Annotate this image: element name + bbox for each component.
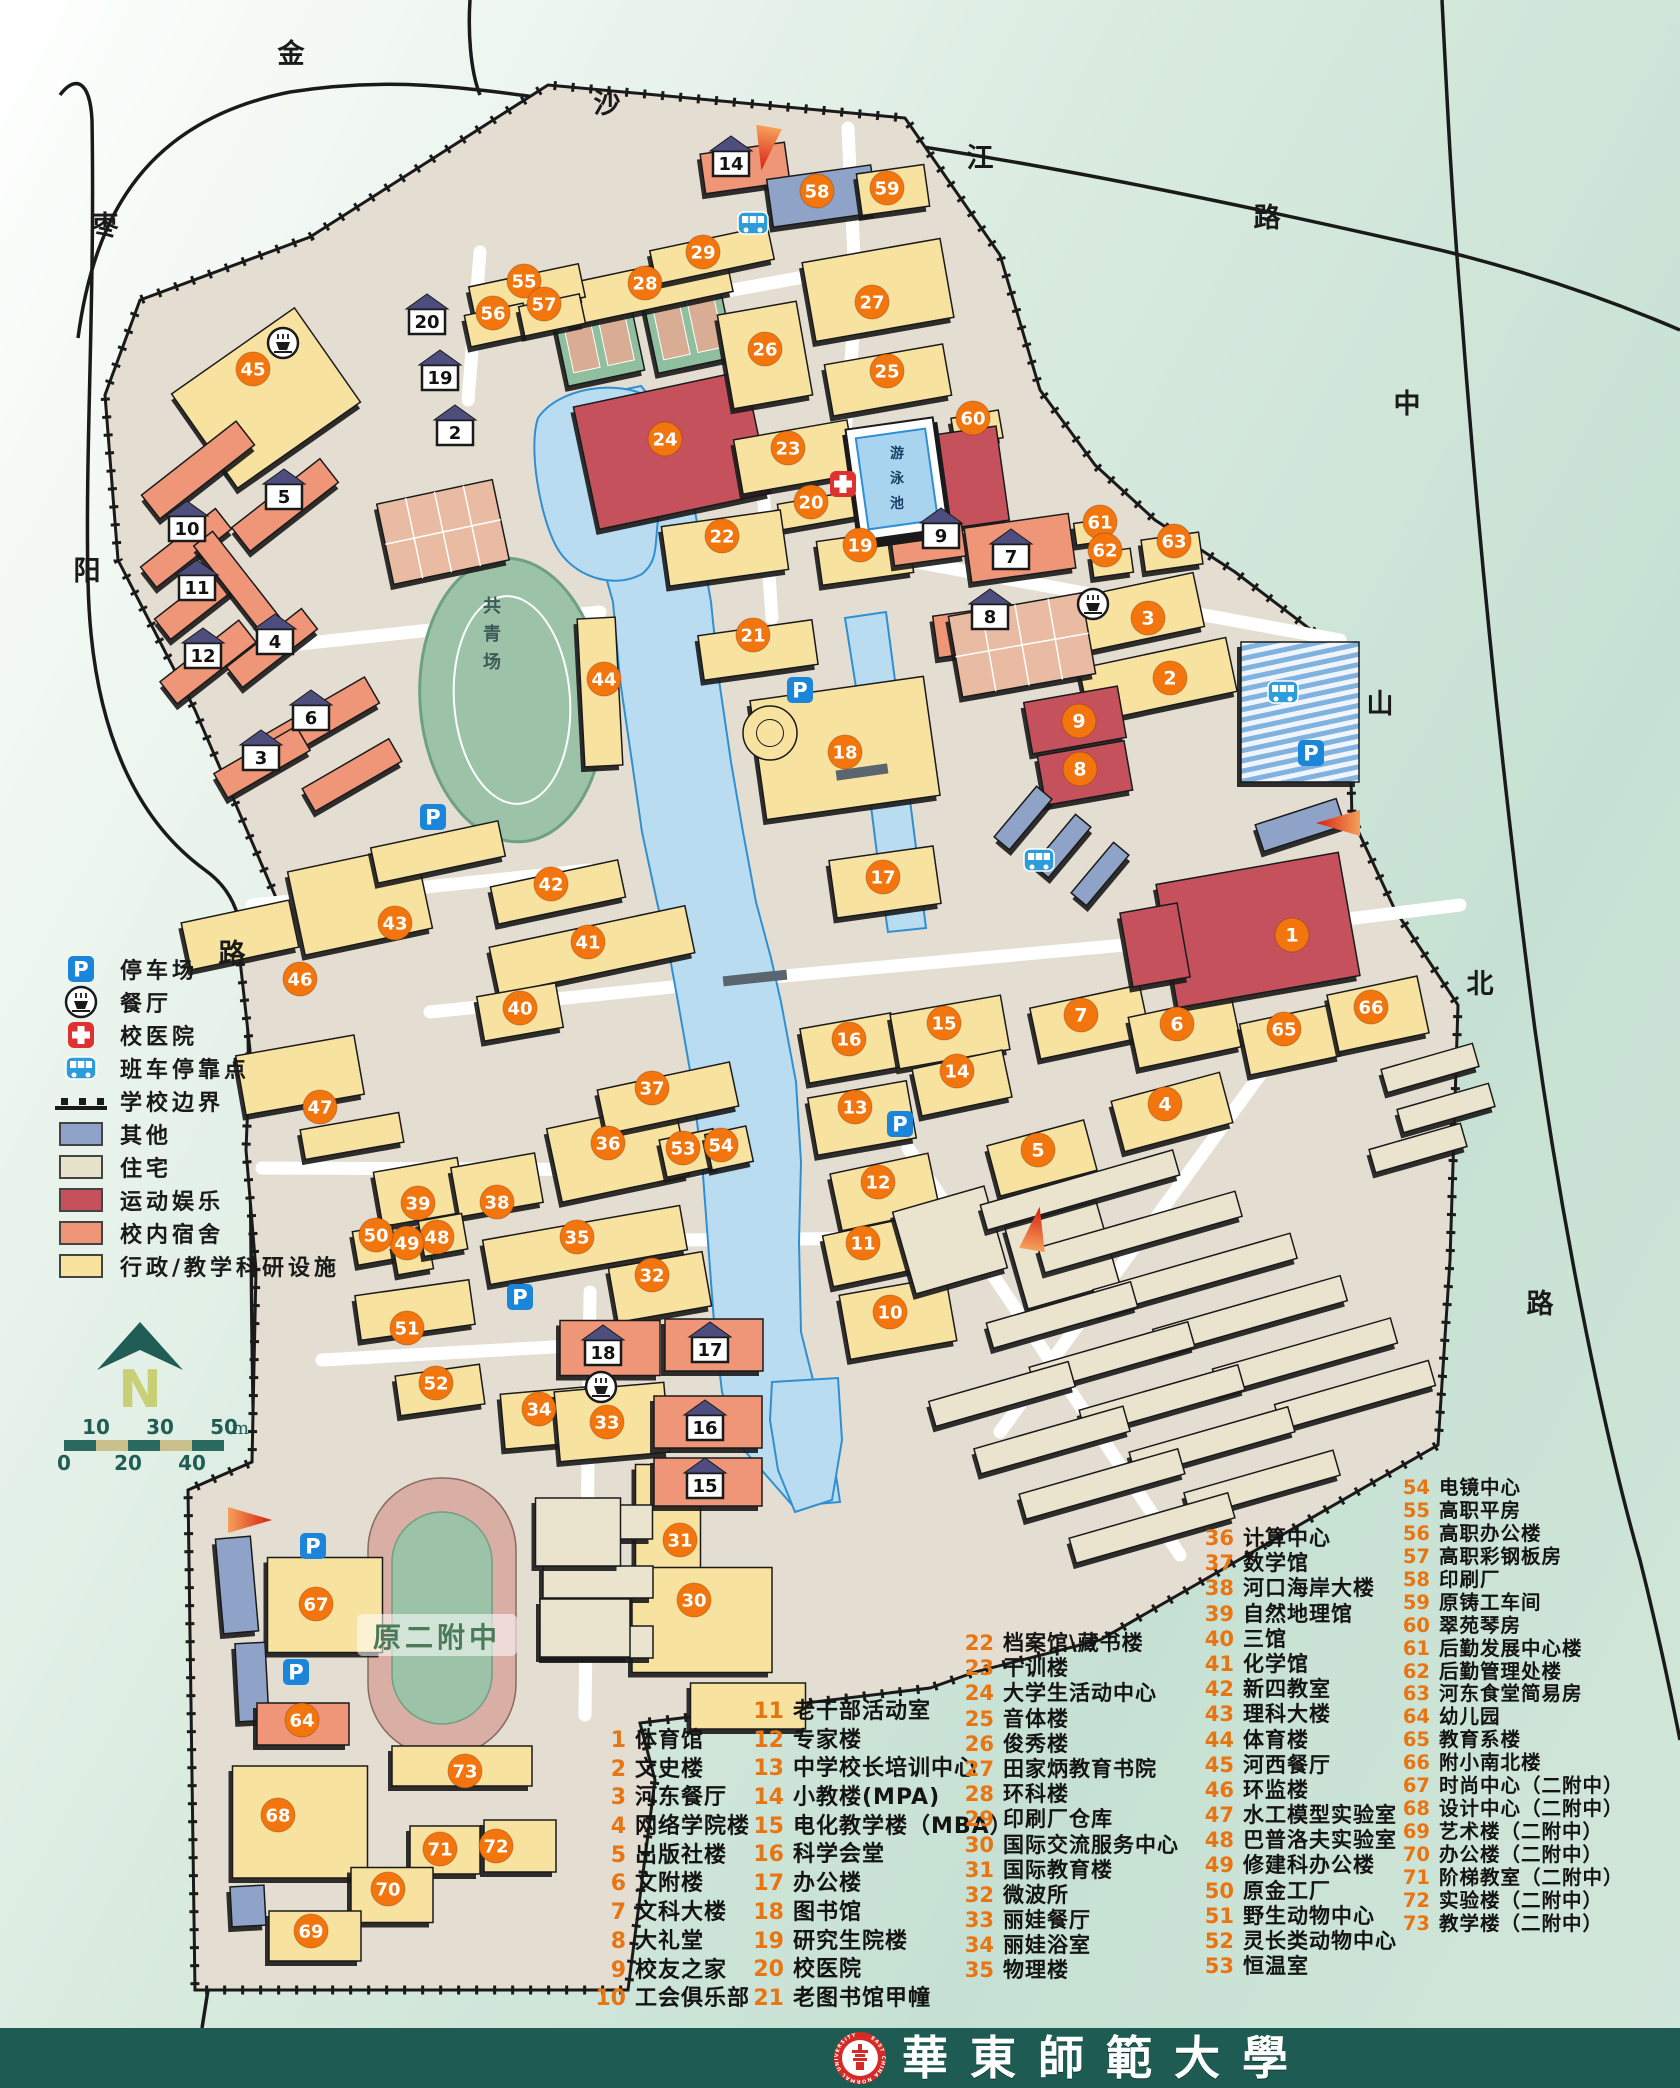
- svg-text:P: P: [892, 1113, 907, 1137]
- building-number: 15: [748, 1814, 784, 1839]
- building-marker-59: 59: [870, 171, 904, 205]
- building-list-item: 30国际交流服务中心: [958, 1829, 1179, 1854]
- svg-text:15: 15: [931, 1014, 956, 1035]
- building-number: 57: [1394, 1545, 1430, 1568]
- svg-text:66: 66: [1358, 998, 1383, 1019]
- building-marker-64: 64: [285, 1703, 319, 1737]
- road-name: 金: [277, 38, 306, 70]
- svg-text:P: P: [792, 679, 807, 703]
- building: [539, 1566, 653, 1603]
- building-marker-39: 39: [401, 1186, 435, 1220]
- boundary-symbol: [55, 1098, 107, 1108]
- map-label: 池: [890, 495, 904, 512]
- road-name: 北: [1467, 969, 1494, 1000]
- building-marker-65: 65: [1267, 1012, 1301, 1046]
- building-number: 73: [1394, 1912, 1430, 1935]
- building-number: 14: [748, 1785, 784, 1810]
- building-number: 53: [1198, 1954, 1234, 1978]
- svg-text:36: 36: [595, 1134, 620, 1155]
- building-marker-2: 2: [1153, 661, 1187, 695]
- building-list-item: 2文史楼: [590, 1751, 750, 1780]
- svg-text:16: 16: [836, 1030, 861, 1051]
- building-marker-9: 9: [1062, 704, 1096, 738]
- building-marker-19: 19: [843, 528, 877, 562]
- legend-label: 餐厅: [120, 986, 172, 1018]
- hospital-icon: [68, 1022, 94, 1048]
- building-list-item: 26俊秀楼: [958, 1728, 1179, 1753]
- building-number: 46: [1198, 1778, 1234, 1802]
- building-name: 小教楼(MPA): [793, 1779, 940, 1811]
- building-marker-31: 31: [663, 1523, 697, 1557]
- building-marker-10: 10: [873, 1295, 907, 1329]
- building-marker-16: 16: [832, 1022, 866, 1056]
- building-marker-15: 15: [927, 1006, 961, 1040]
- building-list-column-5: 54电镜中心55高职平房56高职办公楼57高职彩钢板房58印刷厂59原铸工车间6…: [1394, 1471, 1624, 1930]
- building-marker-14: 14: [940, 1054, 974, 1088]
- building-number: 71: [1394, 1866, 1430, 1889]
- legend-label: 住宅: [120, 1151, 172, 1183]
- map-label: 共: [483, 596, 501, 617]
- svg-text:24: 24: [652, 430, 677, 451]
- svg-text:7: 7: [1005, 547, 1018, 568]
- svg-text:12: 12: [865, 1173, 890, 1194]
- building-number: 50: [1198, 1879, 1234, 1903]
- svg-text:39: 39: [405, 1194, 430, 1215]
- building-number: 36: [1198, 1526, 1234, 1550]
- north-letter: N: [118, 1360, 162, 1412]
- building-number: 32: [958, 1883, 994, 1907]
- building-list-item: 1体育馆: [590, 1722, 750, 1751]
- building-number: 38: [1198, 1576, 1234, 1600]
- building-number: 21: [748, 1986, 784, 2011]
- scale-label: 30: [146, 1415, 174, 1439]
- building-number: 67: [1394, 1774, 1430, 1797]
- building-marker-43: 43: [378, 906, 412, 940]
- svg-text:50: 50: [363, 1226, 388, 1247]
- building-marker-23: 23: [771, 431, 805, 465]
- building-number: 31: [958, 1858, 994, 1882]
- legend-label: 学校边界: [120, 1085, 224, 1117]
- building-name: 文史楼: [635, 1751, 704, 1783]
- building-marker-6: 6: [1160, 1007, 1194, 1041]
- svg-text:63: 63: [1161, 532, 1186, 553]
- building-number: 8: [590, 1929, 626, 1954]
- svg-text:10: 10: [174, 519, 199, 540]
- building-number: 9: [590, 1958, 626, 1983]
- building-list-item: 27田家炳教育书院: [958, 1753, 1179, 1778]
- building-number: 28: [958, 1782, 994, 1806]
- building-number: 56: [1394, 1522, 1430, 1545]
- building-list-item: 3河东餐厅: [590, 1779, 750, 1808]
- building-name: 河东餐厅: [635, 1779, 727, 1811]
- building-list-item: 34丽娃浴室: [958, 1929, 1179, 1954]
- city-road: [469, 0, 480, 95]
- building-name: 工会俱乐部: [635, 1980, 750, 2012]
- svg-text:1: 1: [1285, 925, 1298, 947]
- svg-text:原二附中: 原二附中: [373, 1621, 501, 1654]
- building-number: 42: [1198, 1677, 1234, 1701]
- building-number: 17: [748, 1871, 784, 1896]
- building-marker-26: 26: [748, 332, 782, 366]
- building: [536, 1599, 630, 1662]
- hospital-icon: [830, 471, 856, 497]
- legend-item: 校内宿舍: [42, 1216, 342, 1249]
- svg-text:29: 29: [690, 243, 715, 264]
- building-name: 办公楼: [793, 1865, 862, 1897]
- building-list-item: 32微波所: [958, 1879, 1179, 1904]
- building-list-item: 8大礼堂: [590, 1923, 750, 1952]
- road-name: 山: [1367, 689, 1394, 720]
- bus-stop-icon: [66, 1057, 96, 1079]
- building-list-item: 21老图书馆甲幢: [748, 1980, 1013, 2009]
- legend-label: 行政/教学科研设施: [120, 1250, 340, 1282]
- svg-text:53: 53: [670, 1139, 695, 1160]
- building-list-item: 37数学馆: [1198, 1547, 1397, 1572]
- building-marker-8: 8: [1063, 752, 1097, 786]
- svg-text:9: 9: [935, 526, 948, 547]
- svg-text:70: 70: [375, 1880, 400, 1901]
- building-marker-11: 11: [846, 1226, 880, 1260]
- legend-item: 餐厅: [42, 985, 342, 1018]
- scale-segment: [96, 1440, 128, 1451]
- north-arrow: N: [85, 1312, 195, 1416]
- bus-stop-icon: [738, 212, 768, 234]
- building-name: 专家楼: [793, 1722, 862, 1754]
- restaurant-icon: [268, 328, 298, 358]
- building-name: 校医院: [793, 1951, 862, 1983]
- svg-text:26: 26: [752, 340, 777, 361]
- building-list-item: 48巴普洛夫实验室: [1198, 1824, 1397, 1849]
- building-marker-35: 35: [560, 1220, 594, 1254]
- building-number: 52: [1198, 1929, 1234, 1953]
- building-number: 3: [590, 1785, 626, 1810]
- road-name: 枣: [91, 211, 120, 242]
- svg-text:61: 61: [1087, 513, 1112, 534]
- svg-text:5: 5: [1031, 1140, 1044, 1162]
- svg-text:37: 37: [639, 1079, 664, 1100]
- svg-text:21: 21: [740, 626, 765, 647]
- building-number: 43: [1198, 1702, 1234, 1726]
- legend-label: 其他: [120, 1118, 172, 1150]
- svg-text:P: P: [512, 1286, 527, 1310]
- building-marker-44: 44: [587, 662, 621, 696]
- university-name: 華東師範大學: [902, 2028, 1310, 2088]
- map-label: 游: [890, 445, 904, 462]
- building-marker-13: 13: [838, 1090, 872, 1124]
- svg-text:68: 68: [265, 1806, 290, 1827]
- building-list-item: 29印刷厂仓库: [958, 1803, 1179, 1828]
- building-number: 24: [958, 1681, 994, 1705]
- svg-text:51: 51: [394, 1319, 419, 1340]
- svg-text:14: 14: [944, 1062, 969, 1083]
- building-list-item: 44体育楼: [1198, 1724, 1397, 1749]
- building-name: 文科大楼: [635, 1894, 727, 1926]
- building-number: 45: [1198, 1753, 1234, 1777]
- building-marker-7: 7: [1064, 998, 1098, 1032]
- svg-text:64: 64: [289, 1711, 314, 1732]
- university-logo: EAST CHINA NORMAL UNIVERSITY: [832, 2030, 888, 2086]
- scale-label: 10: [82, 1415, 110, 1439]
- restaurant-icon: [586, 1372, 616, 1402]
- building-number: 33: [958, 1908, 994, 1932]
- building-marker-21: 21: [736, 618, 770, 652]
- building: [229, 1766, 368, 1883]
- building-number: 47: [1198, 1803, 1234, 1827]
- building-list-item: 43理科大楼: [1198, 1698, 1397, 1723]
- parking-icon: P: [887, 1111, 913, 1137]
- svg-text:67: 67: [303, 1595, 328, 1616]
- legend-item: 行政/教学科研设施: [42, 1249, 342, 1282]
- area-label: 原二附中: [357, 1614, 517, 1656]
- building-number: 13: [748, 1756, 784, 1781]
- legend-swatch: [59, 1122, 103, 1146]
- legend-item: 运动娱乐: [42, 1183, 342, 1216]
- building: [743, 706, 797, 760]
- building-name: 图书馆: [793, 1894, 862, 1926]
- scale-unit: m: [232, 1418, 249, 1439]
- parking-icon: P: [1298, 740, 1324, 766]
- building-number: 37: [1198, 1551, 1234, 1575]
- building-marker-53: 53: [666, 1131, 700, 1165]
- bus-stop-icon: [1268, 681, 1298, 703]
- building-number: 72: [1394, 1889, 1430, 1912]
- building-name: 文附楼: [635, 1865, 704, 1897]
- building-number: 69: [1394, 1820, 1430, 1843]
- svg-text:35: 35: [564, 1228, 589, 1249]
- svg-text:31: 31: [667, 1531, 692, 1552]
- building-number: 5: [590, 1843, 626, 1868]
- building-marker-20: 20: [794, 485, 828, 519]
- svg-text:P: P: [1303, 742, 1318, 766]
- building-marker-63: 63: [1157, 524, 1191, 558]
- building-marker-49: 49: [390, 1226, 424, 1260]
- scale-segment: [128, 1440, 160, 1451]
- building-number: 68: [1394, 1797, 1430, 1820]
- building-marker-17: 17: [866, 860, 900, 894]
- building-marker-5: 5: [1021, 1133, 1055, 1167]
- building-number: 19: [748, 1929, 784, 1954]
- legend-swatch: [59, 1188, 103, 1212]
- building-number: 23: [958, 1656, 994, 1680]
- svg-text:57: 57: [531, 295, 556, 316]
- building-number: 44: [1198, 1728, 1234, 1752]
- svg-text:48: 48: [424, 1228, 449, 1249]
- building-list-item: 52灵长类动物中心: [1198, 1925, 1397, 1950]
- building-number: 12: [748, 1728, 784, 1753]
- building-list-item: 23干训楼: [958, 1652, 1179, 1677]
- building-marker-67: 67: [299, 1587, 333, 1621]
- building-marker-4: 4: [1148, 1087, 1182, 1121]
- building-marker-50: 50: [359, 1218, 393, 1252]
- svg-text:32: 32: [639, 1266, 664, 1287]
- legend-item: 住宅: [42, 1150, 342, 1183]
- svg-text:28: 28: [632, 274, 657, 295]
- svg-text:P: P: [288, 1661, 303, 1685]
- building-list-item: 33丽娃餐厅: [958, 1904, 1179, 1929]
- svg-text:2: 2: [1163, 668, 1176, 690]
- svg-text:3: 3: [255, 748, 268, 769]
- building-marker-38: 38: [480, 1185, 514, 1219]
- svg-text:23: 23: [775, 439, 800, 460]
- building-number: 16: [748, 1842, 784, 1867]
- building: [532, 1498, 621, 1571]
- building-list-item: 36计算中心: [1198, 1522, 1397, 1547]
- map-legend: P停车场餐厅校医院班车停靠点学校边界其他住宅运动娱乐校内宿舍行政/教学科研设施: [42, 952, 342, 1282]
- legend-item: 校医院: [42, 1018, 342, 1051]
- bus-stop-icon: [1024, 849, 1054, 871]
- building-list-item: 24大学生活动中心: [958, 1677, 1179, 1702]
- svg-text:11: 11: [850, 1234, 875, 1255]
- svg-text:69: 69: [298, 1922, 323, 1943]
- svg-text:62: 62: [1092, 541, 1117, 562]
- building-name: 恒温室: [1243, 1950, 1309, 1980]
- scale-segment: [192, 1440, 224, 1451]
- road-name: 中: [1394, 389, 1421, 420]
- building-marker-1: 1: [1275, 918, 1309, 952]
- medical-icon: [53, 1018, 109, 1052]
- building-number: 26: [958, 1732, 994, 1756]
- building-name: 教学楼（二附中）: [1439, 1907, 1603, 1936]
- scale-label: 40: [178, 1451, 206, 1475]
- building-list-item: 7文科大楼: [590, 1894, 750, 1923]
- svg-text:41: 41: [575, 933, 600, 954]
- map-label: 青: [483, 624, 501, 645]
- building-number: 59: [1394, 1591, 1430, 1614]
- svg-text:P: P: [73, 957, 88, 981]
- building: [1237, 642, 1359, 787]
- building-marker-69: 69: [294, 1914, 328, 1948]
- road-name: 路: [1527, 1288, 1555, 1320]
- building-number: 60: [1394, 1614, 1430, 1637]
- svg-text:42: 42: [538, 875, 563, 896]
- legend-label: 校内宿舍: [120, 1217, 224, 1249]
- title-bar: EAST CHINA NORMAL UNIVERSITY 華東師範大學: [0, 2028, 1680, 2088]
- building-list-column-1: 1体育馆2文史楼3河东餐厅4网络学院楼5出版社楼6文附楼7文科大楼8大礼堂9校友…: [590, 1722, 750, 2009]
- building-marker-66: 66: [1354, 990, 1388, 1024]
- building-list-item: 42新四教室: [1198, 1673, 1397, 1698]
- building-number: 54: [1394, 1476, 1430, 1499]
- svg-text:72: 72: [483, 1837, 508, 1858]
- building-number: 20: [748, 1957, 784, 1982]
- legend-swatch: [59, 1221, 103, 1245]
- building-list-item: 47水工模型实验室: [1198, 1799, 1397, 1824]
- building-marker-45: 45: [236, 352, 270, 386]
- building-number: 34: [958, 1933, 994, 1957]
- svg-text:7: 7: [1074, 1005, 1087, 1027]
- building-number: 51: [1198, 1904, 1234, 1928]
- building-marker-71: 71: [423, 1832, 457, 1866]
- building-number: 25: [958, 1707, 994, 1731]
- building-marker-57: 57: [527, 287, 561, 321]
- parking-icon: P: [53, 952, 109, 986]
- svg-text:6: 6: [305, 708, 318, 729]
- svg-text:14: 14: [718, 154, 743, 175]
- svg-text:15: 15: [692, 1476, 717, 1497]
- legend-label: 班车停靠点: [120, 1052, 250, 1084]
- building: [226, 1885, 266, 1932]
- building-list-column-3: 22档案馆\藏书楼23干训楼24大学生活动中心25音体楼26俊秀楼27田家炳教育…: [958, 1627, 1179, 1980]
- building-list-item: 10工会俱乐部: [590, 1980, 750, 2009]
- legend-item: 其他: [42, 1117, 342, 1150]
- svg-text:11: 11: [184, 578, 209, 599]
- svg-text:45: 45: [240, 360, 265, 381]
- building-marker-68: 68: [261, 1798, 295, 1832]
- building-number: 55: [1394, 1499, 1430, 1522]
- building-marker-32: 32: [635, 1258, 669, 1292]
- svg-text:P: P: [425, 806, 440, 830]
- svg-text:34: 34: [526, 1400, 551, 1421]
- scale-label: 0: [57, 1451, 71, 1475]
- building-number: 22: [958, 1631, 994, 1655]
- scale-segment: [160, 1440, 192, 1451]
- building-list-item: 9校友之家: [590, 1952, 750, 1981]
- building-number: 65: [1394, 1728, 1430, 1751]
- map-label: 场: [483, 652, 501, 673]
- parking-icon: P: [420, 804, 446, 830]
- building-name: 科学会堂: [793, 1836, 885, 1868]
- building-marker-33: 33: [590, 1405, 624, 1439]
- building-name: 研究生院楼: [793, 1923, 908, 1955]
- svg-text:P: P: [305, 1535, 320, 1559]
- building-list-item: 41化学馆: [1198, 1648, 1397, 1673]
- building-marker-29: 29: [686, 235, 720, 269]
- parking-icon: P: [283, 1659, 309, 1685]
- building-list-item: 45河西餐厅: [1198, 1749, 1397, 1774]
- building-marker-25: 25: [870, 354, 904, 388]
- svg-text:4: 4: [269, 632, 282, 653]
- svg-text:20: 20: [798, 493, 823, 514]
- building-marker-30: 30: [677, 1583, 711, 1617]
- building-number: 6: [590, 1871, 626, 1896]
- building-list-item: 38河口海岸大楼: [1198, 1572, 1397, 1597]
- parking-icon: P: [68, 956, 94, 982]
- building-name: 体育馆: [635, 1722, 704, 1754]
- svg-text:19: 19: [847, 536, 872, 557]
- svg-text:60: 60: [960, 409, 985, 430]
- svg-text:5: 5: [278, 487, 291, 508]
- svg-text:40: 40: [507, 999, 532, 1020]
- building-marker-24: 24: [648, 422, 682, 456]
- svg-text:18: 18: [832, 743, 857, 764]
- building-list-item: 22档案馆\藏书楼: [958, 1627, 1179, 1652]
- legend-label: 运动娱乐: [120, 1184, 224, 1216]
- building-number: 18: [748, 1900, 784, 1925]
- building-number: 30: [958, 1833, 994, 1857]
- building-name: 出版社楼: [635, 1837, 727, 1869]
- building-marker-27: 27: [855, 285, 889, 319]
- building-number: 49: [1198, 1853, 1234, 1877]
- building-list-item: 54电镜中心: [1394, 1471, 1624, 1494]
- food-icon: [53, 985, 109, 1019]
- legend-item: P停车场: [42, 952, 342, 985]
- building-number: 70: [1394, 1843, 1430, 1866]
- svg-text:44: 44: [591, 670, 616, 691]
- road-name: 阳: [74, 556, 101, 587]
- svg-text:25: 25: [874, 362, 899, 383]
- svg-text:58: 58: [804, 182, 829, 203]
- svg-text:8: 8: [1073, 759, 1086, 781]
- building-number: 66: [1394, 1751, 1430, 1774]
- building-number: 61: [1394, 1637, 1430, 1660]
- svg-text:55: 55: [511, 272, 536, 293]
- svg-text:49: 49: [394, 1234, 419, 1255]
- building-list-item: 5出版社楼: [590, 1837, 750, 1866]
- building-list-item: 6文附楼: [590, 1865, 750, 1894]
- building-marker-62: 62: [1088, 533, 1122, 567]
- building-marker-40: 40: [503, 991, 537, 1025]
- legend-label: 校医院: [120, 1019, 198, 1051]
- svg-text:12: 12: [190, 646, 215, 667]
